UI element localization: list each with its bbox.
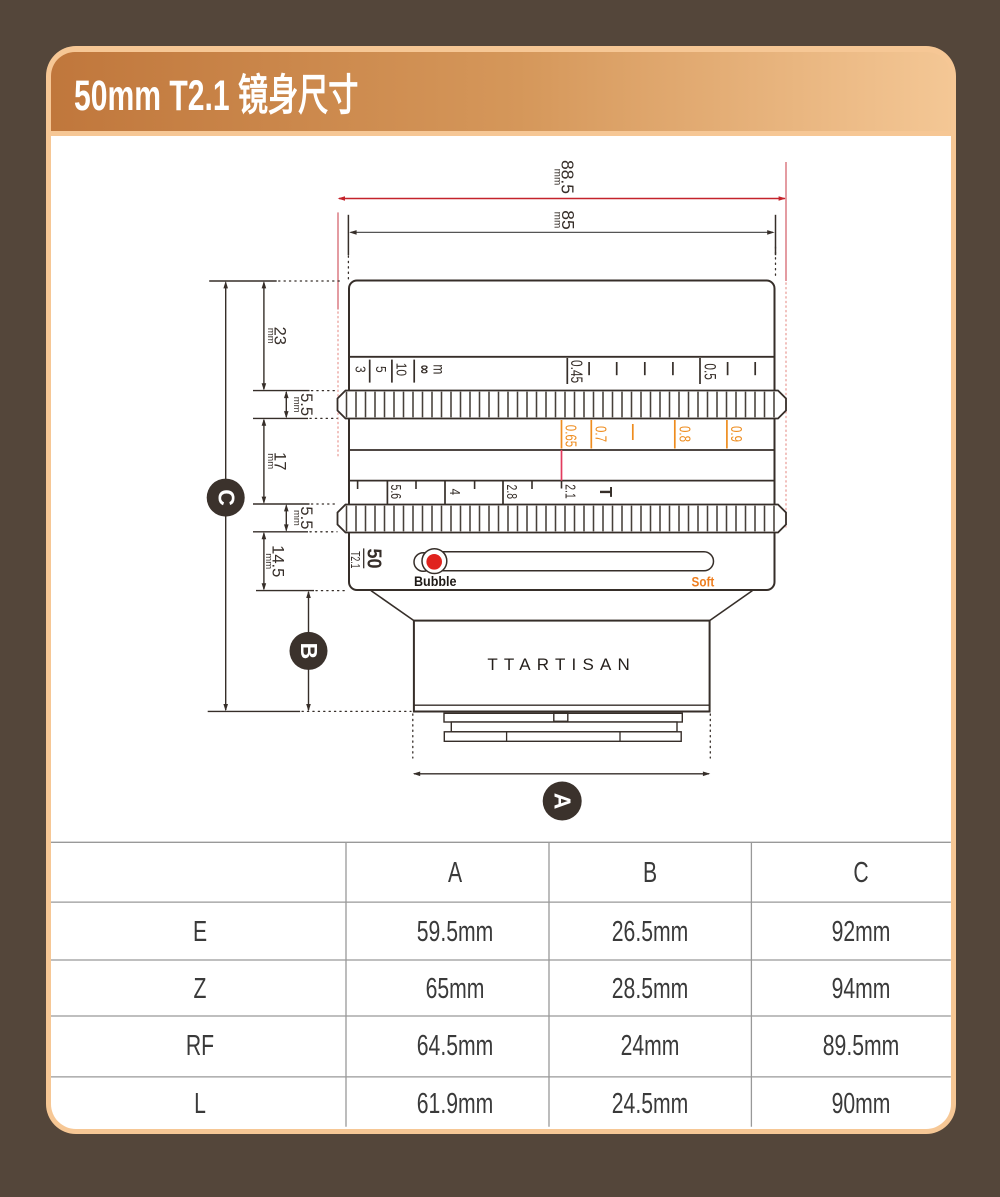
svg-text:0.7: 0.7 xyxy=(592,426,610,442)
svg-text:0.5: 0.5 xyxy=(700,363,718,380)
svg-text:14.5mm: 14.5mm xyxy=(263,545,287,577)
svg-text:65mm: 65mm xyxy=(426,973,485,1005)
svg-text:Z: Z xyxy=(194,973,207,1005)
svg-text:24mm: 24mm xyxy=(621,1030,680,1062)
svg-text:2.8: 2.8 xyxy=(504,485,520,500)
svg-text:L: L xyxy=(194,1088,206,1120)
svg-text:23mm: 23mm xyxy=(265,327,289,345)
svg-text:A: A xyxy=(550,793,576,810)
svg-text:E: E xyxy=(193,916,207,948)
svg-text:4: 4 xyxy=(446,489,463,495)
svg-text:0.9: 0.9 xyxy=(728,426,746,442)
svg-text:T: T xyxy=(596,487,615,498)
svg-text:RF: RF xyxy=(186,1030,214,1062)
svg-text:T2.1: T2.1 xyxy=(348,551,362,568)
svg-text:Soft: Soft xyxy=(692,574,715,590)
svg-text:64.5mm: 64.5mm xyxy=(417,1030,493,1062)
svg-text:0.45: 0.45 xyxy=(567,360,585,383)
svg-text:C: C xyxy=(213,489,239,506)
svg-text:85mm: 85mm xyxy=(552,210,578,229)
svg-text:50: 50 xyxy=(362,548,384,568)
svg-text:28.5mm: 28.5mm xyxy=(612,973,688,1005)
svg-text:88.5mm: 88.5mm xyxy=(551,160,577,194)
svg-text:C: C xyxy=(853,857,868,889)
svg-text:5.5mm: 5.5mm xyxy=(291,506,315,529)
svg-text:90mm: 90mm xyxy=(832,1088,891,1120)
svg-text:5.6: 5.6 xyxy=(388,485,404,500)
svg-text:94mm: 94mm xyxy=(832,973,891,1005)
svg-text:5: 5 xyxy=(372,366,389,373)
svg-text:0.8: 0.8 xyxy=(676,426,694,442)
svg-text:A: A xyxy=(448,857,462,889)
svg-text:0.65: 0.65 xyxy=(562,425,580,448)
svg-text:2.1: 2.1 xyxy=(562,484,578,499)
svg-text:B: B xyxy=(296,643,322,660)
svg-text:92mm: 92mm xyxy=(832,916,891,948)
svg-text:B: B xyxy=(643,857,657,889)
svg-text:10: 10 xyxy=(393,363,410,377)
svg-text:5.5mm: 5.5mm xyxy=(291,393,315,416)
svg-text:59.5mm: 59.5mm xyxy=(417,916,493,948)
svg-text:TTARTISAN: TTARTISAN xyxy=(487,655,636,674)
svg-text:26.5mm: 26.5mm xyxy=(612,916,688,948)
svg-text:17mm: 17mm xyxy=(265,452,289,470)
svg-text:Bubble: Bubble xyxy=(414,574,456,590)
svg-text:61.9mm: 61.9mm xyxy=(417,1088,493,1120)
svg-text:89.5mm: 89.5mm xyxy=(823,1030,899,1062)
svg-text:3: 3 xyxy=(352,366,369,373)
svg-text:m: m xyxy=(430,364,448,374)
svg-text:24.5mm: 24.5mm xyxy=(612,1088,688,1120)
